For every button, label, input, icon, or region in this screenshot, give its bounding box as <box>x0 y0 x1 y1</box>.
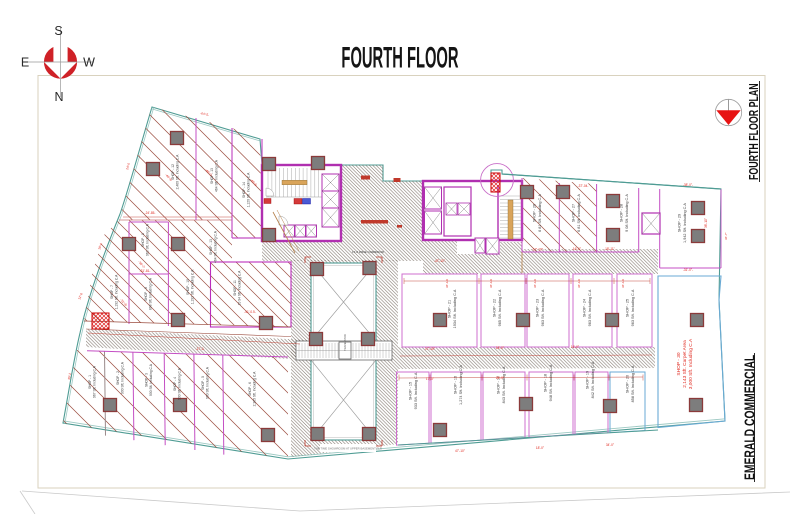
svg-text:SHOP - 1: SHOP - 1 <box>88 375 92 389</box>
svg-text:SHOP - 5: SHOP - 5 <box>201 376 205 390</box>
svg-text:36'-1/2: 36'-1/2 <box>621 279 625 288</box>
svg-text:SHOP - 3: SHOP - 3 <box>144 373 148 387</box>
svg-text:SHOP - 2: SHOP - 2 <box>116 371 120 385</box>
svg-text:W: W <box>83 56 95 70</box>
svg-text:1,192 Sft. Including C.A: 1,192 Sft. Including C.A <box>114 274 118 309</box>
svg-text:SHOP - 7: SHOP - 7 <box>110 285 114 299</box>
svg-text:948 Sft. Including C.A: 948 Sft. Including C.A <box>549 364 553 401</box>
svg-text:3,000 Sft. Including C.A: 3,000 Sft. Including C.A <box>688 338 694 389</box>
svg-text:36'-1/2: 36'-1/2 <box>533 279 537 288</box>
svg-text:EMERALD COMMERCIAL: EMERALD COMMERCIAL <box>741 355 758 480</box>
svg-text:963 Sft. Including C.A: 963 Sft. Including C.A <box>541 289 545 326</box>
svg-text:SHOP - 9: SHOP - 9 <box>144 287 148 301</box>
svg-text:-31'-81-: -31'-81- <box>140 269 151 273</box>
svg-text:898 Sft. Including C.A: 898 Sft. Including C.A <box>148 277 152 310</box>
svg-text:2,143 Sft. Carpet Area: 2,143 Sft. Carpet Area <box>682 340 688 388</box>
svg-text:464 Sft. Including C.A: 464 Sft. Including C.A <box>213 230 217 263</box>
svg-text:-17'-0-: -17'-0- <box>195 347 204 351</box>
svg-text:900 Sft. Including C.A: 900 Sft. Including C.A <box>205 366 209 399</box>
svg-text:SHOP - 23: SHOP - 23 <box>536 299 540 317</box>
svg-text:17'-10'': 17'-10'' <box>425 347 435 351</box>
svg-text:SHOP - 11: SHOP - 11 <box>233 280 237 296</box>
svg-text:SHOP - 16: SHOP - 16 <box>454 376 458 394</box>
svg-text:963 Sft. Including C.A: 963 Sft. Including C.A <box>588 289 592 326</box>
svg-text:36'-1/2: 36'-1/2 <box>577 279 581 288</box>
svg-text:SHOP - 19: SHOP - 19 <box>586 371 590 389</box>
svg-text:16'-0'': 16'-0'' <box>571 345 580 349</box>
svg-text:SHOP - 8: SHOP - 8 <box>141 233 145 247</box>
svg-text:SHOP - 13: SHOP - 13 <box>209 239 213 255</box>
svg-text:900 Sft. Including C.A: 900 Sft. Including C.A <box>120 361 124 394</box>
svg-text:858 Sft. Including C.A: 858 Sft. Including C.A <box>631 365 635 402</box>
svg-text:34'-0'': 34'-0'' <box>606 443 615 447</box>
svg-text:38'-10'': 38'-10'' <box>704 218 708 228</box>
svg-text:2,365 Sft. Including C.A: 2,365 Sft. Including C.A <box>252 371 256 406</box>
svg-text:963 Sft. Including C.A: 963 Sft. Including C.A <box>631 289 635 326</box>
svg-text:843 Sft. Including C.A: 843 Sft. Including C.A <box>502 366 506 403</box>
svg-text:900 Sft. Including C.A: 900 Sft. Including C.A <box>149 363 153 396</box>
svg-text:SHOP - 24: SHOP - 24 <box>583 299 587 317</box>
svg-text:1,942 Sft. Including C.A: 1,942 Sft. Including C.A <box>683 203 687 243</box>
svg-text:1,274 Sft. Including C.A: 1,274 Sft. Including C.A <box>459 365 463 405</box>
svg-text:1,192 Sft. Including C.A: 1,192 Sft. Including C.A <box>190 269 194 304</box>
svg-text:36'-7'': 36'-7'' <box>724 232 728 240</box>
svg-text:SHOP - 21: SHOP - 21 <box>448 300 452 318</box>
svg-text:965 Sft. Including C.A: 965 Sft. Including C.A <box>498 289 502 326</box>
svg-text:SHOP - 22: SHOP - 22 <box>493 299 497 317</box>
svg-text:464 Sft. Including C.A: 464 Sft. Including C.A <box>214 159 218 192</box>
svg-text:963 Sft. Including C.A: 963 Sft. Including C.A <box>145 223 149 256</box>
svg-text:SHOP - 20: SHOP - 20 <box>626 375 630 393</box>
svg-text:THE TIME SHOWROOM AT UPPER BAS: THE TIME SHOWROOM AT UPPER BASEMENT FLR <box>314 447 382 451</box>
svg-text:1934 Sft. Including C.A: 1934 Sft. Including C.A <box>453 289 457 328</box>
svg-text:10 94 Sft. Including C.A: 10 94 Sft. Including C.A <box>237 270 241 305</box>
svg-text:36'-1/2: 36'-1/2 <box>445 279 449 288</box>
svg-text:SHOP - 28: SHOP - 28 <box>620 204 624 222</box>
svg-text:6 81 Sft. Including C.A: 6 81 Sft. Including C.A <box>577 194 581 232</box>
svg-text:2,460 Sft. Including C.A: 2,460 Sft. Including C.A <box>175 154 179 189</box>
svg-text:18'-0'': 18'-0'' <box>496 346 505 350</box>
svg-text:-31'-0''-: -31'-0''- <box>683 268 693 272</box>
svg-text:SHOP - 4: SHOP - 4 <box>173 377 177 391</box>
svg-text:FOURTH FLOOR: FOURTH FLOOR <box>341 41 458 74</box>
svg-text:-18'-11''-: -18'-11''- <box>604 247 616 251</box>
svg-text:SHOP - 26: SHOP - 26 <box>533 204 537 222</box>
svg-text:-38'-0''-: -38'-0''- <box>683 183 693 187</box>
svg-text:N: N <box>54 90 63 104</box>
svg-text:842 Sft. Including C.A: 842 Sft. Including C.A <box>591 361 595 398</box>
svg-text:SHOP - 27: SHOP - 27 <box>572 204 576 222</box>
svg-text:-24'-85-: -24'-85- <box>145 211 156 215</box>
svg-text:24'-0'': 24'-0'' <box>496 376 505 380</box>
svg-text:9 08 Sft. Including C.A: 9 08 Sft. Including C.A <box>625 194 629 232</box>
svg-text:SHOP - 10: SHOP - 10 <box>186 279 190 295</box>
svg-text:-47'-10''-: -47'-10''- <box>434 259 446 263</box>
svg-text:SHOP - 15: SHOP - 15 <box>409 382 413 400</box>
svg-text:47'-10'': 47'-10'' <box>455 449 465 453</box>
svg-text:17-0 WIDE CORRIDOR: 17-0 WIDE CORRIDOR <box>352 250 385 254</box>
svg-text:6 81 Sft. Including C.A: 6 81 Sft. Including C.A <box>538 194 542 232</box>
svg-text:17'-0'': 17'-0'' <box>426 377 435 381</box>
svg-text:SHOP - 6: SHOP - 6 <box>248 382 252 396</box>
svg-text:SHOP - 14: SHOP - 14 <box>242 182 246 198</box>
svg-text:1,120 Sft. Including C.A: 1,120 Sft. Including C.A <box>246 172 250 207</box>
svg-text:SHOP - 30: SHOP - 30 <box>676 352 682 375</box>
svg-text:-37'-04-: -37'-04- <box>578 184 589 188</box>
svg-text:S: S <box>54 24 62 38</box>
svg-text:TRAVELATOR: TRAVELATOR <box>343 334 347 351</box>
svg-text:-16'-0''-: -16'-0''- <box>572 247 582 251</box>
svg-text:967 Sft. Including C.A: 967 Sft. Including C.A <box>92 365 96 398</box>
svg-text:-17'-10''-: -17'-10''- <box>532 248 544 252</box>
svg-text:SHOP - 29: SHOP - 29 <box>678 214 682 232</box>
svg-text:18'-0'': 18'-0'' <box>536 446 545 450</box>
svg-text:E: E <box>21 56 29 70</box>
svg-text:-41'-0.5-: -41'-0.5- <box>244 310 256 314</box>
svg-text:36'-1/2: 36'-1/2 <box>489 279 493 288</box>
svg-text:SHOP - 18: SHOP - 18 <box>544 374 548 392</box>
svg-text:SHOP - 25: SHOP - 25 <box>626 299 630 317</box>
svg-text:900 Sft. Including C.A: 900 Sft. Including C.A <box>177 367 181 400</box>
